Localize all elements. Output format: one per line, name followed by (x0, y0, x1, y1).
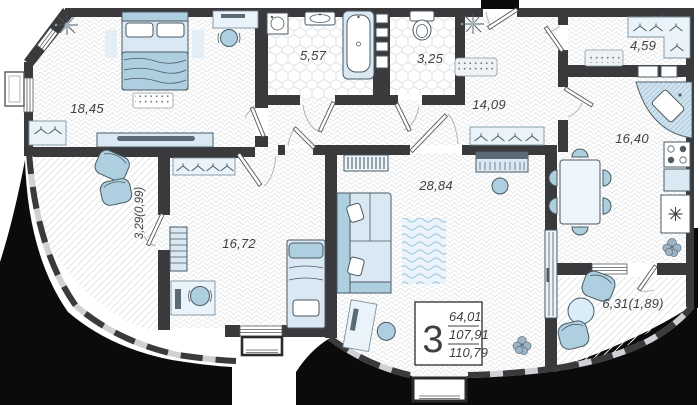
sofa-icon (337, 193, 391, 293)
label-bathroom: 5,57 (300, 48, 327, 63)
washing-machine-icon (267, 13, 288, 34)
rooms-count: 3 (422, 319, 443, 361)
area-living: 64,01 (449, 309, 482, 324)
wardrobe-icon (29, 121, 66, 145)
floor-plan: 18,45 5,57 3,25 14,09 4,59 16,40 28,84 1… (0, 0, 700, 405)
wall-cabinet-icon (661, 66, 677, 77)
bay-living (413, 378, 466, 401)
stove-icon (664, 142, 690, 167)
single-bed-icon (287, 240, 325, 328)
label-bedroom-2: 16,72 (222, 236, 256, 251)
bookshelf-icon (170, 227, 187, 271)
balcony-table-icon (568, 298, 594, 324)
label-living: 28,84 (418, 178, 453, 193)
ac-bracket-icon (5, 72, 24, 106)
coat-rack-icon (470, 127, 544, 145)
counter-icon (664, 169, 690, 191)
window-bedroom-2 (240, 326, 282, 336)
label-bedroom-1: 18,45 (70, 101, 104, 116)
label-dressing: 4,59 (630, 38, 656, 53)
wardrobe-icon (173, 158, 235, 175)
window-left-wall (24, 78, 33, 112)
bathtub-icon (343, 11, 374, 79)
radiator-icon (344, 155, 388, 171)
sink-icon (305, 12, 335, 25)
desk-icon (171, 281, 215, 315)
label-hallway: 14,09 (472, 97, 506, 112)
glass-door-living-balcony (545, 230, 557, 318)
tv-console-icon (97, 133, 213, 147)
bay-bedroom-2 (242, 337, 282, 355)
info-box: 3 64,01 107,91 110,79 (415, 302, 489, 365)
nightstand-icon (192, 30, 204, 58)
label-balcony-right: 6,31(1,89) (602, 296, 663, 311)
label-balcony-left: 3,29(0,99) (134, 187, 146, 240)
floor-plan-canvas: 18,45 5,57 3,25 14,09 4,59 16,40 28,84 1… (0, 0, 700, 405)
area-middle: 107,91 (449, 327, 489, 342)
wall-cabinet-icon (638, 66, 658, 77)
ottoman-dots (135, 95, 171, 106)
label-kitchen: 16,40 (615, 131, 649, 146)
fridge-snowflake-icon (661, 195, 690, 233)
piano-stool-icon (492, 178, 508, 194)
area-total: 110,79 (449, 345, 488, 360)
nightstand-icon (105, 30, 117, 58)
double-bed-icon (122, 12, 188, 90)
office-chair-icon (191, 287, 210, 306)
office-chair-icon (221, 30, 238, 47)
door-handle-icon (547, 268, 550, 282)
label-wc: 3,25 (417, 51, 444, 66)
